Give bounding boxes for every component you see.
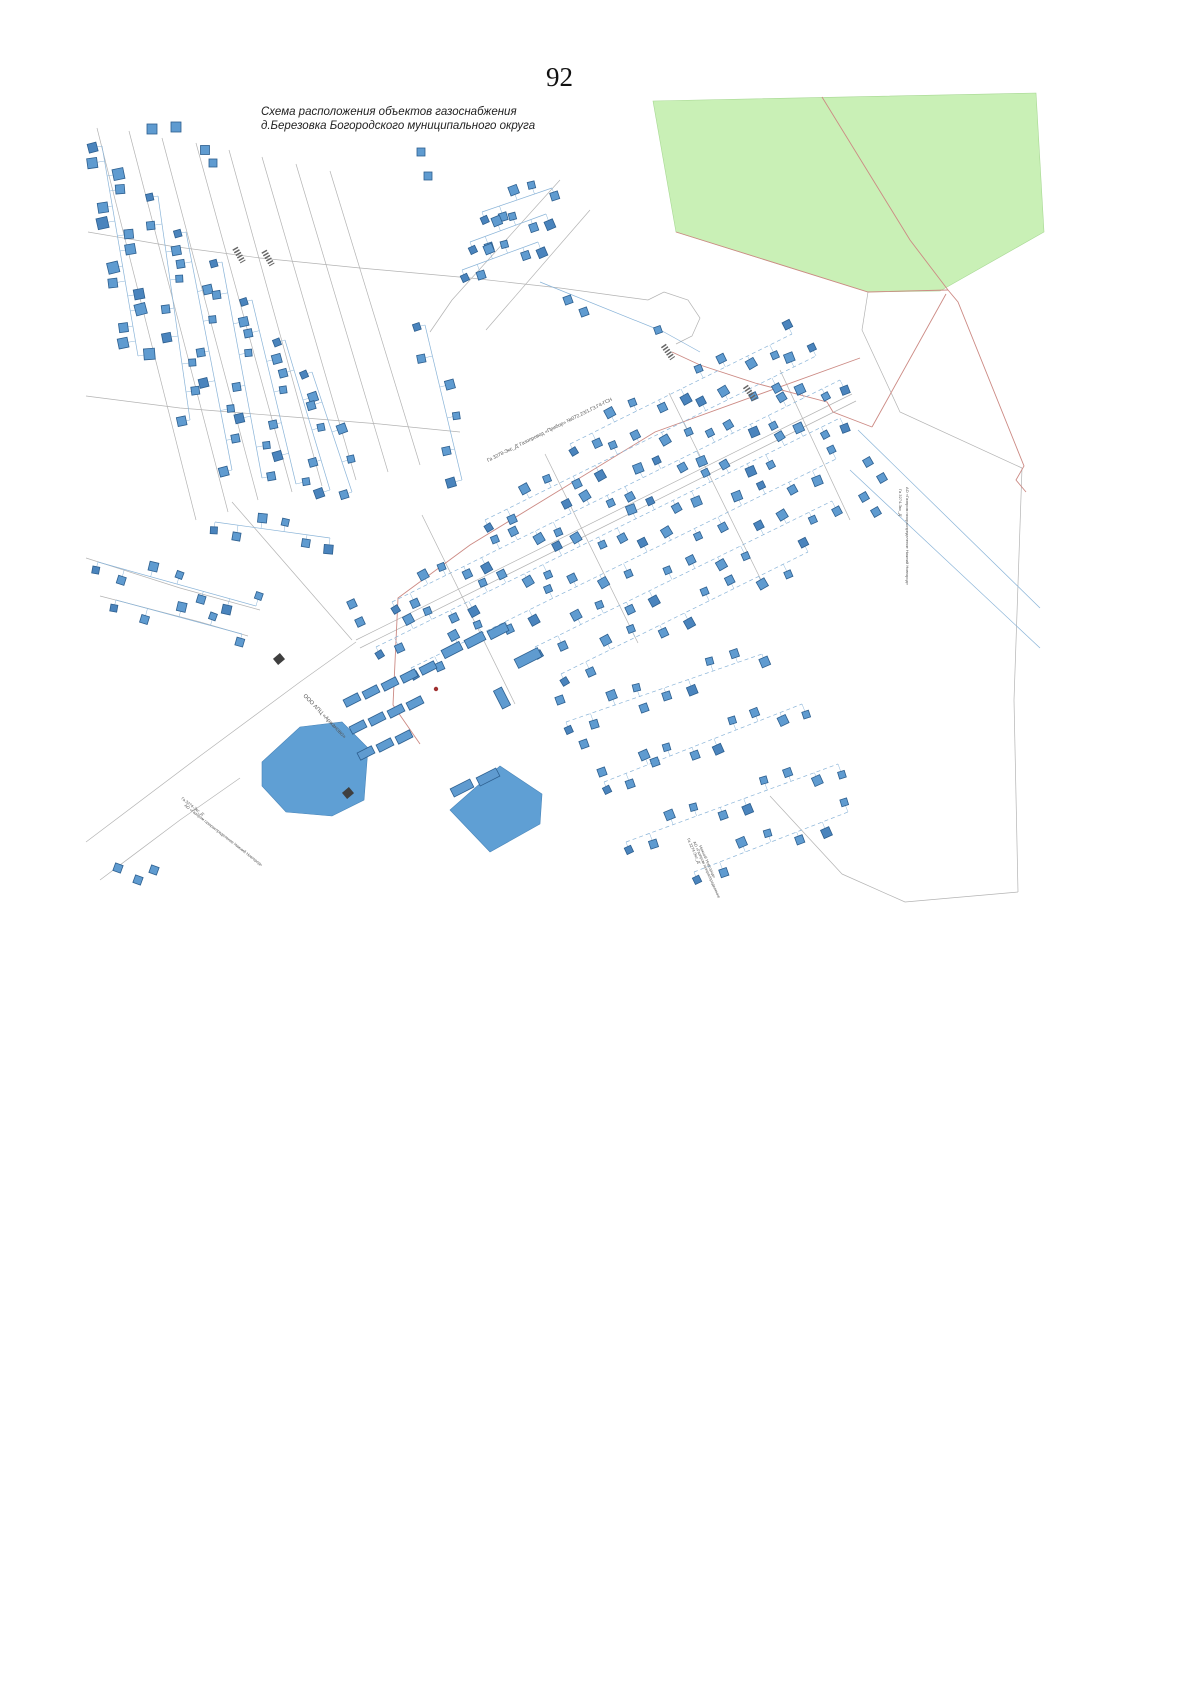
pipeline: [425, 325, 462, 480]
building-marker: [693, 532, 702, 541]
building-marker: [660, 526, 672, 538]
barn-building-marker: [349, 720, 367, 734]
building-marker: [770, 351, 779, 360]
building-marker: [148, 561, 159, 572]
building-marker: [118, 323, 128, 333]
building-marker: [518, 483, 530, 495]
building-marker: [696, 455, 708, 467]
building-marker: [827, 445, 836, 454]
building-marker: [218, 466, 229, 477]
building-marker: [355, 617, 366, 628]
building-marker: [759, 776, 768, 785]
building-marker: [691, 496, 703, 508]
building-marker: [97, 202, 108, 213]
building-marker: [570, 609, 582, 621]
building-marker: [717, 385, 729, 397]
building-marker: [112, 168, 125, 181]
building-marker: [424, 172, 432, 180]
building-marker: [279, 386, 287, 394]
road-line: [862, 292, 1022, 468]
building-marker: [639, 703, 649, 713]
building-marker: [700, 587, 709, 596]
building-marker: [550, 191, 560, 201]
building-marker: [784, 570, 793, 579]
building-marker: [684, 427, 693, 436]
pond: [450, 766, 542, 852]
building-marker: [871, 507, 882, 518]
building-marker: [528, 614, 540, 626]
building-marker: [544, 219, 556, 231]
building-marker: [146, 221, 155, 230]
building-marker: [402, 613, 414, 625]
barn-building-marker: [376, 738, 394, 752]
building-marker: [628, 398, 637, 407]
building-marker: [92, 566, 100, 574]
building-marker: [718, 810, 728, 820]
building-marker: [696, 396, 707, 407]
building-marker: [347, 599, 358, 610]
building-marker: [299, 370, 308, 379]
building-marker: [600, 634, 612, 646]
building-marker: [490, 535, 499, 544]
road-line: [1014, 468, 1022, 892]
building-marker: [301, 539, 310, 548]
building-marker: [646, 497, 655, 506]
building-marker: [604, 407, 616, 419]
building-marker: [196, 348, 205, 357]
building-marker: [417, 354, 426, 363]
building-marker: [808, 515, 817, 524]
building-marker: [271, 353, 282, 364]
building-marker: [572, 478, 583, 489]
building-marker: [308, 457, 318, 467]
building-marker: [232, 532, 241, 541]
building-marker: [756, 578, 768, 590]
building-marker: [638, 749, 650, 761]
building-marker: [625, 604, 636, 615]
building-marker: [302, 478, 310, 486]
building-marker: [585, 667, 596, 678]
building-marker: [748, 426, 760, 438]
building-marker: [507, 514, 518, 525]
building-marker: [838, 770, 847, 779]
building-marker: [189, 359, 196, 366]
building-marker: [741, 552, 750, 561]
building-marker: [202, 284, 213, 295]
building-marker: [859, 492, 870, 503]
building-marker: [592, 438, 603, 449]
building-marker: [671, 503, 682, 514]
road-line: [430, 300, 452, 332]
building-marker: [777, 714, 789, 726]
building-marker: [724, 575, 735, 586]
building-marker: [110, 604, 118, 612]
barn-building-marker: [368, 712, 386, 726]
building-marker: [147, 124, 157, 134]
building-marker: [542, 474, 551, 483]
building-marker: [776, 392, 787, 403]
building-marker: [766, 460, 775, 469]
building-marker: [654, 326, 663, 335]
building-marker: [617, 533, 628, 544]
building-marker: [686, 684, 698, 696]
building-marker: [536, 247, 548, 259]
building-marker: [659, 434, 671, 446]
building-marker: [254, 592, 263, 601]
building-marker: [500, 240, 509, 249]
building-marker: [462, 569, 473, 580]
building-marker: [569, 447, 579, 457]
building-marker: [175, 570, 184, 579]
building-marker: [306, 401, 316, 411]
hatch-marker: [663, 345, 672, 358]
building-marker: [448, 629, 460, 641]
building-marker: [339, 490, 349, 500]
building-marker: [795, 835, 805, 845]
building-marker: [417, 148, 425, 156]
building-marker: [209, 316, 217, 324]
building-marker: [753, 520, 764, 531]
building-marker: [176, 602, 187, 613]
equipment-marker: [273, 653, 285, 665]
building-marker: [555, 695, 565, 705]
building-marker: [626, 624, 635, 633]
building-marker: [176, 259, 185, 268]
building-marker: [756, 481, 765, 490]
road-line: [356, 394, 852, 640]
building-marker: [544, 584, 553, 593]
building-marker: [134, 303, 147, 316]
building-marker: [484, 523, 494, 533]
building-marker: [683, 617, 695, 629]
building-marker: [595, 600, 604, 609]
gas-supply-map: Га 3278-Экс_Д' Газопровод «Прибор» №072.…: [0, 0, 1200, 1697]
building-marker: [652, 456, 661, 465]
barn-building-marker: [514, 648, 542, 669]
building-marker: [96, 217, 109, 230]
building-marker: [558, 641, 569, 652]
building-marker: [783, 767, 793, 777]
building-marker: [579, 490, 591, 502]
building-marker: [176, 275, 183, 282]
building-marker: [723, 419, 734, 430]
building-marker: [238, 316, 249, 327]
building-marker: [637, 537, 648, 548]
building-marker: [783, 352, 795, 364]
building-marker: [793, 422, 805, 434]
pipeline: [626, 764, 838, 842]
building-marker: [445, 477, 456, 488]
building-marker: [149, 865, 159, 875]
building-marker: [171, 122, 181, 132]
boundary-line: [872, 294, 946, 427]
building-marker: [124, 229, 134, 239]
building-marker: [272, 338, 281, 347]
building-marker: [391, 605, 401, 615]
building-marker: [763, 829, 772, 838]
building-marker: [736, 836, 748, 848]
building-marker: [630, 430, 641, 441]
building-marker: [209, 159, 217, 167]
barn-building-marker: [419, 661, 437, 675]
building-marker: [715, 559, 727, 571]
building-marker: [210, 527, 217, 534]
building-marker: [317, 423, 325, 431]
building-marker: [272, 450, 283, 461]
building-marker: [171, 245, 181, 255]
map-label: АО «Газпром газораспределение Нижний Нов…: [905, 487, 910, 586]
building-marker: [442, 446, 452, 456]
building-marker: [116, 575, 126, 585]
building-marker: [227, 405, 235, 413]
building-marker: [508, 526, 519, 537]
building-marker: [235, 637, 245, 647]
building-marker: [412, 323, 421, 332]
building-marker: [648, 595, 660, 607]
building-marker: [608, 441, 617, 450]
building-marker: [606, 689, 618, 701]
building-marker: [529, 222, 539, 232]
building-marker: [745, 465, 757, 477]
building-marker: [685, 555, 696, 566]
barn-building-marker: [387, 704, 405, 718]
building-marker: [840, 385, 850, 395]
building-marker: [589, 719, 599, 729]
building-marker: [143, 348, 155, 360]
building-marker: [606, 498, 615, 507]
building-marker: [191, 386, 200, 395]
building-marker: [173, 229, 182, 238]
building-marker: [769, 421, 778, 430]
building-marker: [107, 261, 120, 274]
building-marker: [417, 569, 429, 581]
building-marker: [115, 184, 125, 194]
building-marker: [196, 594, 206, 604]
building-marker: [480, 215, 489, 224]
document-page: 92 Схема расположения объектов газоснабж…: [0, 0, 1200, 1697]
building-marker: [579, 307, 589, 317]
barn-building-marker: [487, 622, 509, 639]
building-marker: [444, 379, 455, 390]
building-marker: [212, 290, 221, 299]
building-marker: [468, 605, 480, 617]
hatch-marker: [264, 251, 272, 265]
building-marker: [650, 757, 660, 767]
building-marker: [125, 243, 137, 255]
building-marker: [716, 353, 727, 364]
building-marker: [680, 393, 692, 405]
pond: [262, 722, 368, 816]
building-marker: [560, 677, 570, 687]
building-marker: [807, 343, 816, 352]
building-marker: [567, 573, 578, 584]
building-marker: [521, 250, 531, 260]
building-marker: [117, 337, 129, 349]
building-marker: [776, 509, 788, 521]
building-marker: [811, 775, 823, 787]
building-marker: [234, 413, 245, 424]
building-marker: [496, 569, 507, 580]
building-marker: [718, 522, 729, 533]
building-marker: [832, 506, 843, 517]
building-marker: [554, 528, 563, 537]
road-line: [97, 128, 196, 520]
building-marker: [231, 434, 240, 443]
building-marker: [508, 184, 520, 196]
building-marker: [877, 473, 888, 484]
building-marker: [113, 863, 123, 873]
barn-building-marker: [395, 730, 413, 744]
building-marker: [719, 868, 729, 878]
building-marker: [598, 540, 607, 549]
building-marker: [244, 329, 253, 338]
building-marker: [624, 845, 633, 854]
building-marker: [468, 245, 477, 254]
building-marker: [375, 650, 385, 660]
building-marker: [774, 431, 785, 442]
building-marker: [324, 544, 334, 554]
building-marker: [663, 566, 672, 575]
building-marker: [624, 569, 633, 578]
barn-building-marker: [441, 641, 463, 658]
building-marker: [201, 146, 210, 155]
map-label: АО «Газпром газораспределение Нижний Нов…: [183, 803, 264, 868]
building-marker: [692, 875, 701, 884]
barn-building-marker: [343, 693, 361, 707]
building-marker: [759, 656, 771, 668]
building-marker: [161, 332, 172, 343]
building-marker: [749, 707, 759, 717]
map-label: АО «Газпром газораспределение: [692, 840, 722, 899]
building-marker: [648, 839, 658, 849]
building-marker: [423, 607, 432, 616]
building-marker: [689, 803, 698, 812]
building-marker: [662, 691, 672, 701]
pipeline: [850, 470, 1040, 648]
building-marker: [460, 273, 469, 282]
building-marker: [782, 319, 793, 330]
building-marker: [745, 357, 757, 369]
building-marker: [602, 785, 611, 794]
building-marker: [594, 469, 606, 481]
building-marker: [140, 615, 150, 625]
barn-building-marker: [381, 677, 399, 691]
building-marker: [263, 441, 271, 449]
building-marker: [563, 295, 573, 305]
building-marker: [729, 649, 739, 659]
building-marker: [145, 193, 153, 201]
red-point-marker: [434, 687, 438, 691]
building-marker: [452, 412, 460, 420]
building-marker: [728, 716, 737, 725]
pipeline: [604, 704, 802, 782]
building-marker: [522, 575, 534, 587]
building-marker: [245, 349, 253, 357]
building-marker: [597, 767, 607, 777]
barn-building-marker: [406, 696, 424, 710]
road-line: [842, 874, 1018, 902]
building-marker: [561, 498, 572, 509]
building-marker: [208, 612, 217, 621]
building-marker: [802, 710, 811, 719]
building-marker: [820, 430, 829, 439]
building-marker: [570, 532, 582, 544]
building-marker: [798, 537, 809, 548]
barn-building-marker: [362, 685, 380, 699]
building-marker: [701, 468, 710, 477]
building-marker: [840, 423, 850, 433]
building-marker: [543, 570, 552, 579]
building-marker: [632, 683, 640, 691]
building-marker: [731, 490, 743, 502]
map-label: Га 3274-Экс_Д': [898, 489, 903, 517]
building-marker: [742, 803, 754, 815]
building-marker: [625, 779, 635, 789]
building-marker: [662, 743, 671, 752]
building-marker: [772, 383, 783, 394]
building-marker: [108, 278, 118, 288]
building-marker: [481, 562, 493, 574]
pipeline: [540, 282, 664, 332]
building-marker: [221, 604, 232, 615]
road-line: [232, 502, 352, 640]
building-marker: [705, 657, 714, 666]
building-marker: [821, 392, 830, 401]
building-marker: [87, 142, 98, 153]
building-marker: [176, 416, 187, 427]
building-marker: [658, 627, 669, 638]
building-marker: [278, 368, 288, 378]
building-marker: [712, 743, 724, 755]
building-marker: [690, 750, 700, 760]
building-marker: [232, 382, 241, 391]
building-marker: [664, 809, 676, 821]
pipeline: [222, 262, 262, 478]
building-marker: [313, 488, 325, 500]
building-marker: [281, 518, 289, 526]
building-marker: [347, 455, 355, 463]
building-marker: [257, 513, 267, 523]
building-marker: [625, 491, 636, 502]
pipeline: [858, 430, 1040, 608]
building-marker: [821, 827, 833, 839]
building-marker: [209, 259, 218, 268]
building-marker: [705, 428, 714, 437]
building-marker: [508, 212, 517, 221]
forest-area: [653, 93, 1044, 292]
building-marker: [410, 598, 421, 609]
building-marker: [863, 457, 874, 468]
building-marker: [478, 578, 487, 587]
building-marker: [677, 462, 688, 473]
building-marker: [533, 532, 545, 544]
barn-building-marker: [464, 631, 486, 648]
building-marker: [133, 875, 143, 885]
building-marker: [632, 463, 644, 475]
building-marker: [449, 613, 460, 624]
building-marker: [87, 157, 98, 168]
building-marker: [268, 420, 278, 430]
building-marker: [133, 288, 145, 300]
building-marker: [564, 725, 573, 734]
building-marker: [579, 739, 589, 749]
building-marker: [657, 402, 668, 413]
building-marker: [597, 576, 609, 588]
barn-building-marker: [400, 669, 418, 683]
building-marker: [787, 484, 798, 495]
building-marker: [840, 798, 849, 807]
building-marker: [336, 423, 348, 435]
